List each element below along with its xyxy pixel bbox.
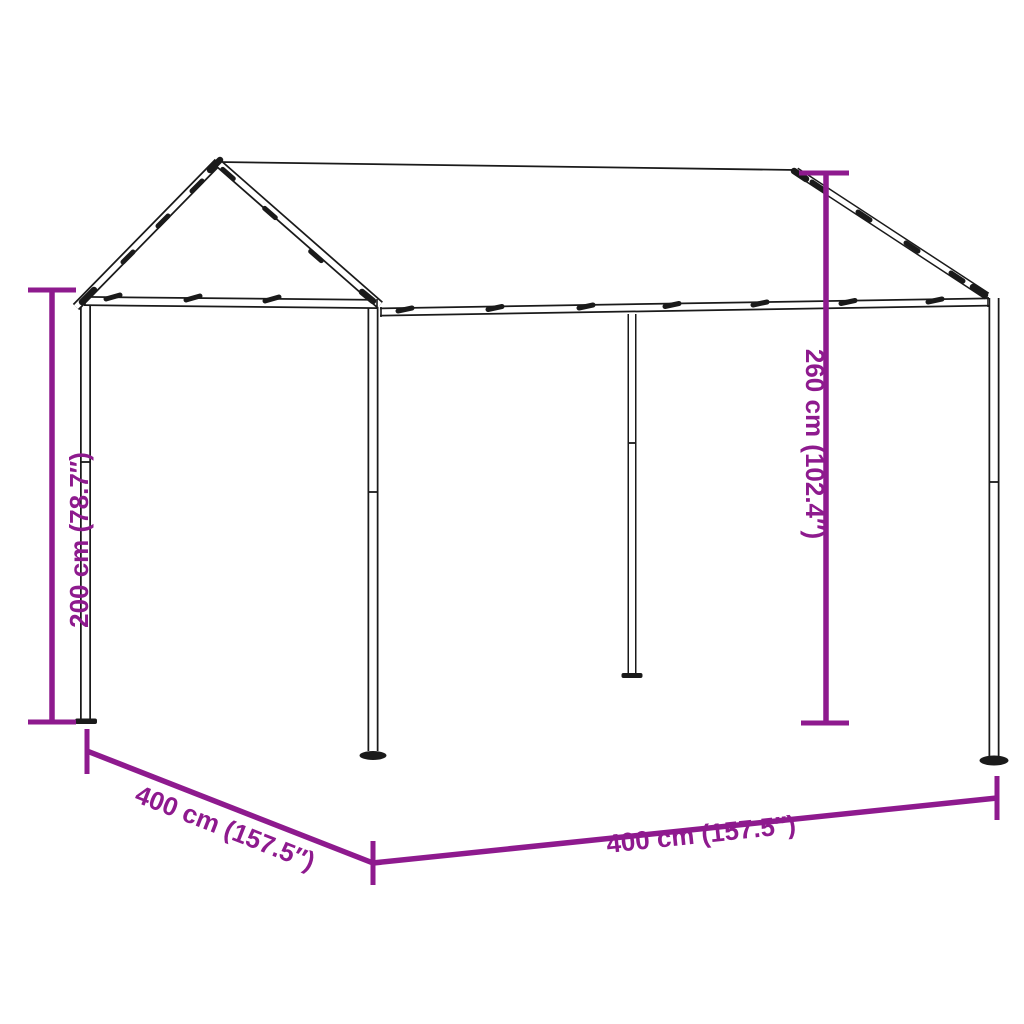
canopy-structure: [75, 160, 1009, 766]
dimension-width-front: [87, 729, 373, 885]
front-eave-beam: [84, 301, 378, 304]
dimension-label-height-left: 200 cm (78.7″): [64, 452, 94, 628]
dimension-diagram: 200 cm (78.7″) 260 cm (102.4″) 400 cm (1…: [0, 0, 1024, 1024]
connector-clamps: [106, 169, 963, 311]
post-feet: [75, 673, 1009, 766]
dimension-label-width-front: 400 cm (157.5″): [131, 779, 319, 876]
front-right-rafter: [217, 162, 380, 305]
dimension-label-depth-side: 400 cm (157.5″): [605, 809, 797, 859]
pole-joint-marks: [80, 443, 1000, 492]
dimension-label-height-right: 260 cm (102.4″): [800, 349, 830, 539]
product-dimension-image: 200 cm (78.7″) 260 cm (102.4″) 400 cm (1…: [0, 0, 1024, 1024]
ridge-line: [218, 162, 796, 170]
right-eave-beam: [380, 302, 989, 312]
dimension-annotations: [28, 173, 997, 885]
corner-brackets: [82, 160, 985, 302]
